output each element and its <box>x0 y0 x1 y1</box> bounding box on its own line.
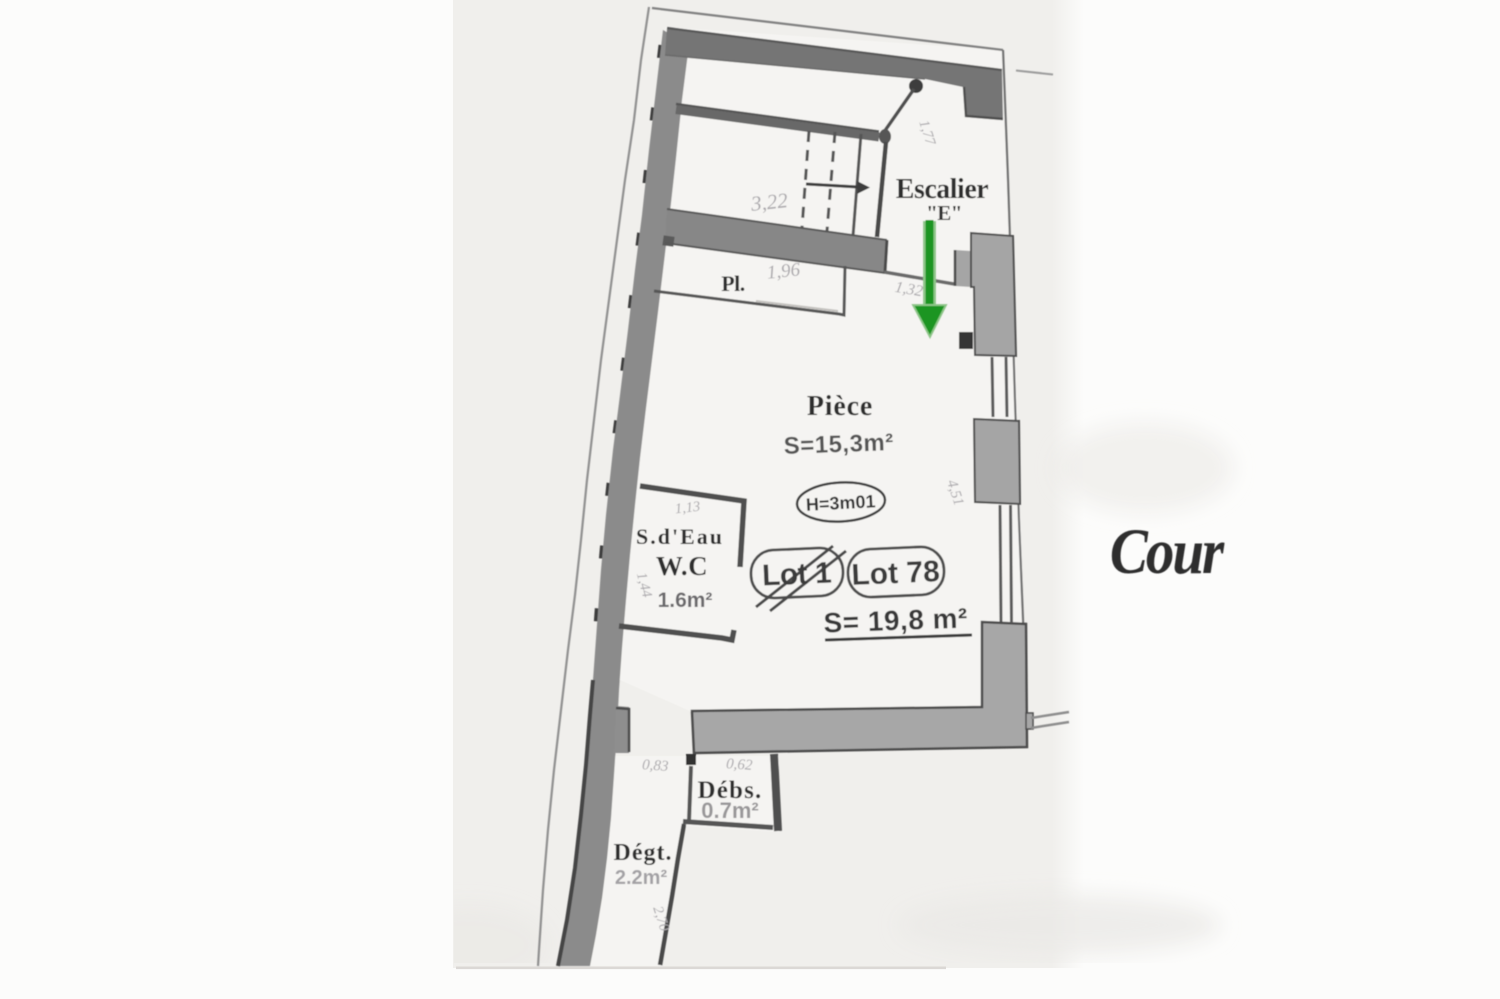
svg-text:Dégt.: Dégt. <box>614 840 673 866</box>
svg-text:2.2m²: 2.2m² <box>615 867 668 889</box>
svg-text:S.d'Eau: S.d'Eau <box>636 524 724 549</box>
svg-text:3,22: 3,22 <box>749 188 790 216</box>
svg-text:S= 19,8 m²: S= 19,8 m² <box>823 602 968 638</box>
svg-text:W.C: W.C <box>656 551 708 581</box>
svg-text:1,13: 1,13 <box>674 499 701 518</box>
svg-text:Cour: Cour <box>1110 517 1226 588</box>
svg-text:Pl.: Pl. <box>721 271 745 296</box>
svg-text:"E": "E" <box>926 201 962 225</box>
svg-text:1.6m²: 1.6m² <box>658 589 713 612</box>
svg-text:Pièce: Pièce <box>807 391 873 422</box>
svg-text:H=3m01: H=3m01 <box>805 491 876 515</box>
svg-text:Lot 78: Lot 78 <box>851 555 941 592</box>
svg-text:0,62: 0,62 <box>726 756 754 774</box>
svg-text:Lot 1: Lot 1 <box>761 557 832 593</box>
svg-text:0,83: 0,83 <box>642 757 669 775</box>
svg-text:1,96: 1,96 <box>766 259 802 283</box>
svg-text:0.7m²: 0.7m² <box>701 798 758 823</box>
svg-text:S=15,3m²: S=15,3m² <box>783 429 894 460</box>
